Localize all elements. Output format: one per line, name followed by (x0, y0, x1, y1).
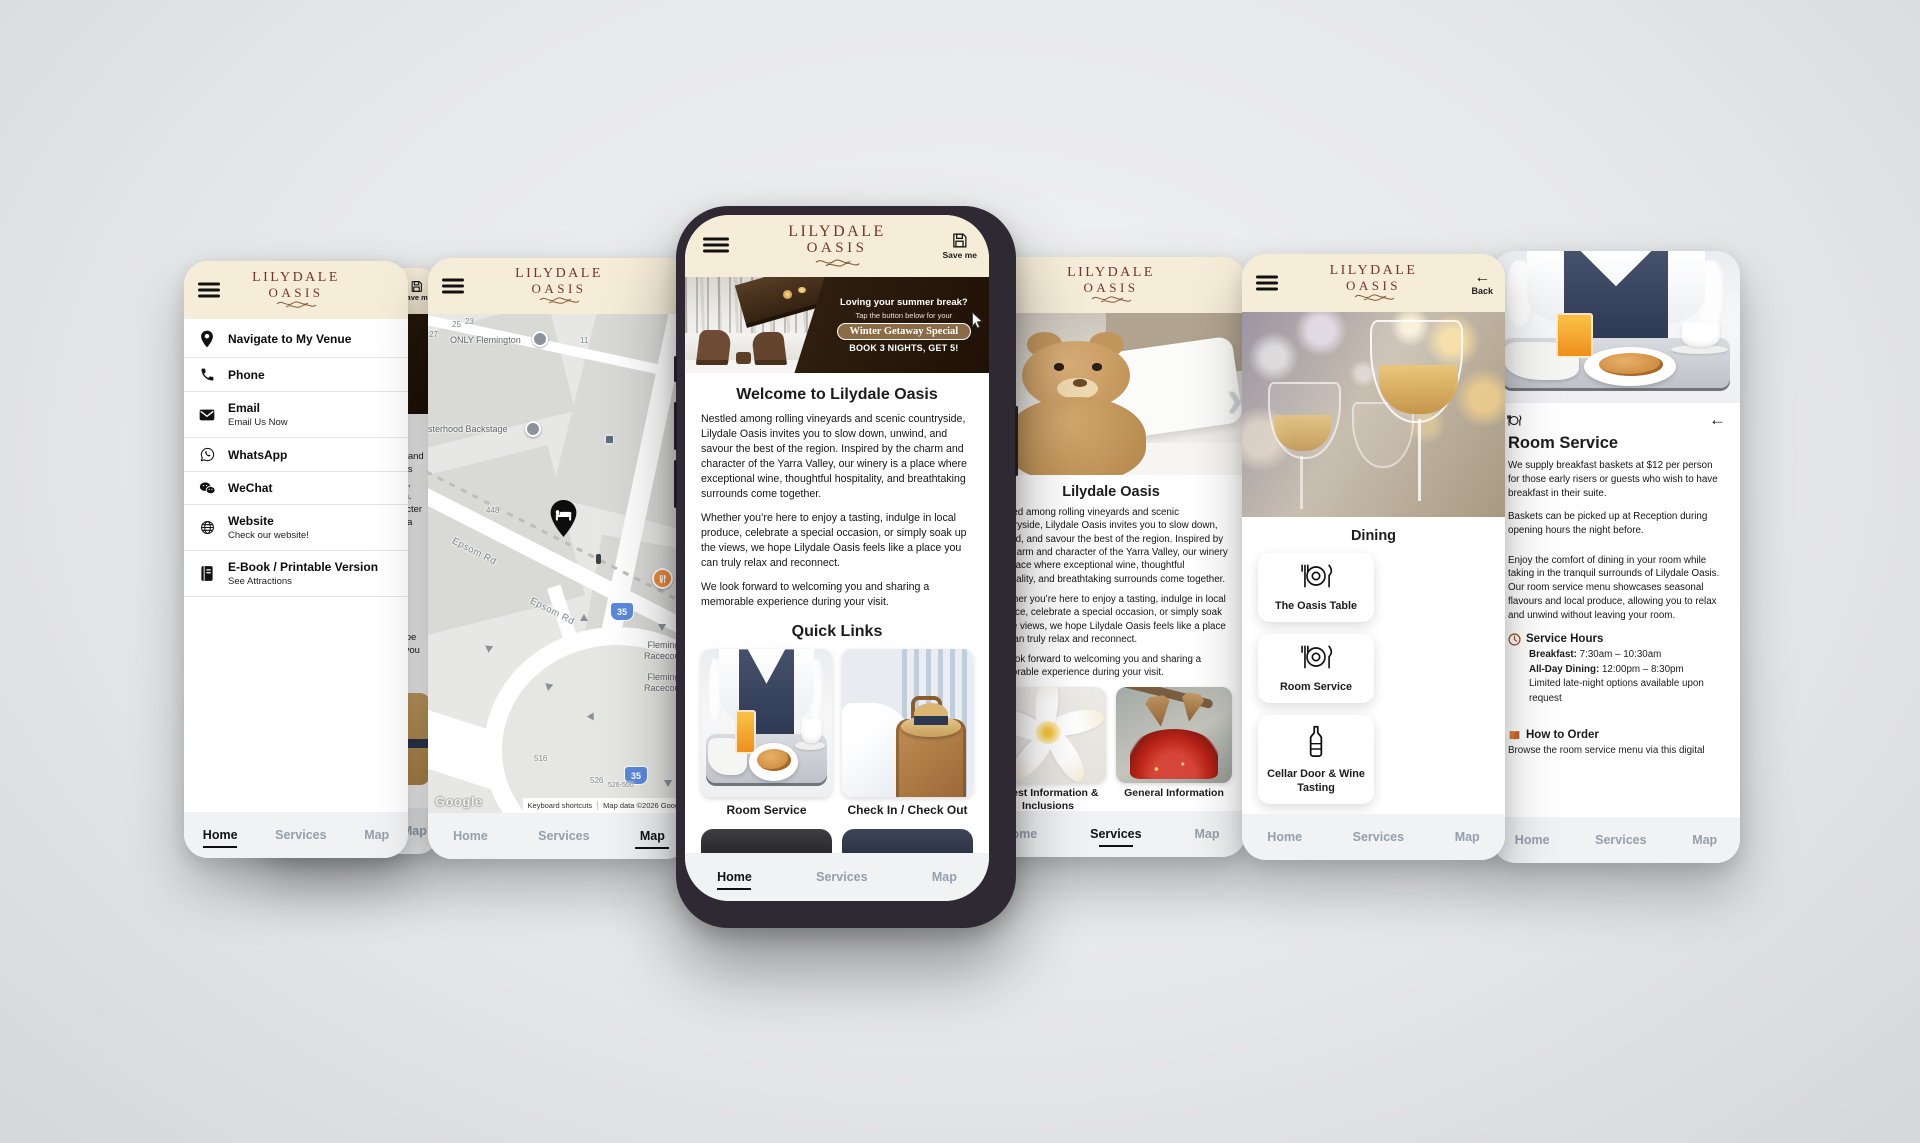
dining-cards: The Oasis Table Room Service Cellar Door… (1242, 553, 1505, 804)
quick-links-title: Quick Links (701, 623, 973, 641)
room-service-title: Room Service (1492, 430, 1740, 459)
banner-text: Loving your summer break? Tap the button… (819, 277, 989, 373)
welcome-paragraph: We look forward to welcoming you and sha… (701, 580, 973, 610)
nav-home[interactable]: Home (717, 870, 752, 884)
venue-pin-icon[interactable] (550, 500, 577, 542)
app-header: LILYDALE OASIS (184, 261, 408, 319)
back-arrow-icon: ← (1474, 270, 1490, 286)
screen-contact-menu: LILYDALE OASIS Navigate to My Venue Phon… (184, 261, 408, 858)
hamburger-menu-icon[interactable] (1256, 276, 1278, 291)
brand-line1: LILYDALE (788, 224, 885, 241)
menu-item-label: Website (228, 514, 309, 528)
room-service-paragraph: Baskets can be picked up at Reception du… (1508, 510, 1724, 538)
brand-line2: OASIS (252, 286, 340, 300)
room-service-photo (1492, 251, 1740, 403)
hours-breakfast: Breakfast: 7:30am – 10:30am (1529, 648, 1724, 663)
map-label: 23 (465, 317, 474, 326)
about-paragraph: We look forward to welcoming you and sha… (990, 653, 1232, 680)
brand-waves-icon (274, 300, 318, 309)
welcome-paragraph: Whether you’re here to enjoy a tasting, … (701, 511, 973, 571)
map-pin-icon[interactable] (525, 421, 541, 437)
nav-services[interactable]: Services (816, 870, 867, 884)
back-arrow-icon[interactable]: ← (1709, 410, 1726, 430)
banner-offer: BOOK 3 NIGHTS, GET 5! (849, 343, 958, 353)
mouse-cursor (970, 312, 985, 334)
nav-services[interactable]: Services (275, 828, 326, 842)
menu-item-label: Navigate to My Venue (228, 332, 351, 346)
app-header: LILYDALE OASIS ← Back (1242, 254, 1505, 312)
quick-link-partial-card[interactable] (842, 829, 973, 855)
hamburger-menu-icon[interactable] (442, 279, 464, 294)
google-logo[interactable]: Google (435, 794, 483, 809)
wechat-icon (197, 481, 217, 495)
nav-home[interactable]: Home (1267, 830, 1302, 844)
dining-title: Dining (1242, 528, 1505, 544)
globe-icon (197, 520, 217, 535)
map-pin-icon[interactable] (532, 331, 548, 347)
quick-link-check-in-out[interactable]: Check In / Check Out (842, 649, 973, 817)
clock-icon (1508, 633, 1521, 646)
map-label: 27 (429, 330, 438, 339)
services-body: Lilydale Oasis Nestled among rolling vin… (976, 484, 1246, 857)
traffic-light-icon (596, 554, 601, 564)
brand-logo: LILYDALE OASIS (252, 271, 340, 309)
banner-headline: Loving your summer break? (840, 297, 968, 308)
home-body: Welcome to Lilydale Oasis Nestled among … (685, 386, 989, 855)
map-label: 448 (486, 506, 499, 515)
app-header: LILYDALE OASIS (428, 258, 690, 314)
brand-waves-icon (1089, 295, 1133, 304)
bottom-nav: Home Services Map (1242, 814, 1505, 860)
welcome-title: Welcome to Lilydale Oasis (701, 386, 973, 404)
nav-home[interactable]: Home (453, 829, 488, 843)
brand-line1: LILYDALE (252, 271, 340, 286)
brand-waves-icon (811, 258, 863, 268)
plate-cutlery-icon (1506, 414, 1522, 427)
menu-item-label: E-Book / Printable Version (228, 560, 378, 574)
service-cards-row: Guest Information & Inclusions General I… (990, 687, 1232, 813)
plate-cutlery-icon (1298, 563, 1334, 589)
nav-home[interactable]: Home (1515, 833, 1550, 847)
dining-card-cellar-door[interactable]: Cellar Door & Wine Tasting (1258, 715, 1374, 804)
dining-card-room-service[interactable]: Room Service (1258, 634, 1374, 703)
brand-line2: OASIS (515, 282, 603, 296)
brand-waves-icon (537, 296, 581, 305)
dining-card-label: Cellar Door & Wine Tasting (1262, 767, 1370, 795)
menu-item-label: WhatsApp (228, 448, 287, 462)
dining-card-label: The Oasis Table (1262, 599, 1370, 613)
service-hours-section: Service Hours (1508, 633, 1724, 646)
menu-item-sub: Email Us Now (228, 417, 288, 428)
menu-item-ebook[interactable]: E-Book / Printable VersionSee Attraction… (184, 551, 408, 597)
brand-logo: LILYDALE OASIS (1067, 266, 1155, 304)
room-service-paragraph: We supply breakfast baskets at $12 per p… (1508, 459, 1724, 501)
about-title: Lilydale Oasis (990, 484, 1232, 500)
save-me-label: Save me (943, 250, 978, 260)
nav-services[interactable]: Services (1353, 830, 1404, 844)
location-pin-icon (197, 330, 217, 348)
about-paragraph: Whether you’re here to enjoy a tasting, … (990, 593, 1232, 646)
check-in-photo (842, 649, 973, 797)
map-label: 526-550 (608, 782, 634, 789)
promo-banner[interactable]: Loving your summer break? Tap the button… (685, 277, 989, 373)
service-card-general-info[interactable]: General Information (1116, 687, 1232, 813)
brand-line2: OASIS (1330, 279, 1418, 293)
nav-home[interactable]: Home (203, 828, 238, 842)
menu-item-sub: See Attractions (228, 576, 378, 587)
google-map[interactable]: 25 23 27 ONLY Flemington 11 Sisterhood B… (428, 314, 690, 813)
banner-subline: Tap the button below for your (856, 311, 953, 320)
quick-link-room-service[interactable]: Room Service (701, 649, 832, 817)
whatsapp-icon (197, 447, 217, 462)
bottom-nav: Home Services Map (184, 812, 408, 858)
map-poi-label: Sisterhood Backstage (428, 424, 508, 434)
bottom-nav: Home Services Map (428, 813, 690, 859)
save-icon (951, 232, 968, 249)
menu-item-whatsapp[interactable]: WhatsApp (184, 438, 408, 472)
brand-line1: LILYDALE (1067, 266, 1155, 281)
brand-logo: LILYDALE OASIS (788, 224, 885, 268)
screen-dining: LILYDALE OASIS ← Back Dining (1242, 254, 1505, 860)
screen-map: LILYDALE OASIS 25 23 27 (428, 258, 690, 859)
menu-item-label: WeChat (228, 481, 272, 495)
welcome-paragraph: Nestled among rolling vineyards and scen… (701, 412, 973, 502)
nav-map[interactable]: Map (1692, 833, 1717, 847)
nav-services[interactable]: Services (538, 829, 589, 843)
brand-logo: LILYDALE OASIS (515, 267, 603, 305)
menu-item-phone[interactable]: Phone (184, 358, 408, 392)
how-to-order-text: Browse the room service menu via this di… (1508, 744, 1724, 759)
back-button[interactable]: ← Back (1471, 270, 1493, 296)
dining-card-oasis-table[interactable]: The Oasis Table (1258, 553, 1374, 622)
detail-toolbar: ← (1492, 403, 1740, 430)
bottom-nav: Home Services Map (685, 853, 989, 901)
save-icon (410, 280, 423, 293)
room-service-paragraph: Enjoy the comfort of dining in your room… (1508, 554, 1724, 624)
keyboard-shortcuts-link[interactable]: Keyboard shortcuts (523, 801, 598, 810)
route-shield-35: 35 (610, 602, 634, 621)
about-paragraph: Nestled among rolling vineyards and scen… (990, 506, 1232, 586)
how-to-order-section: How to Order (1508, 729, 1724, 742)
map-attribution: Keyboard shortcuts Map data ©2026 Google (523, 798, 690, 813)
brand-line1: LILYDALE (515, 267, 603, 282)
dining-card-label: Room Service (1262, 680, 1370, 694)
quick-link-label: Check In / Check Out (842, 803, 973, 817)
winter-special-button[interactable]: Winter Getaway Special (837, 323, 972, 340)
email-icon (197, 409, 217, 421)
phone-mockup: LILYDALE OASIS Save me (676, 206, 1016, 928)
screen-room-service: ← Room Service We supply breakfast baske… (1492, 251, 1740, 863)
quick-links-next-row (701, 829, 973, 855)
save-me-button[interactable]: Save me (943, 232, 978, 260)
app-header: LILYDALE OASIS (976, 257, 1246, 313)
brand-waves-icon (1352, 293, 1396, 302)
menu-item-email[interactable]: EmailEmail Us Now (184, 392, 408, 438)
nav-map[interactable]: Map (640, 829, 665, 843)
map-label: 11 (580, 336, 588, 345)
wine-bottle-icon (1307, 725, 1325, 757)
map-poi-label: ONLY Flemington (450, 335, 521, 345)
mockup-canvas: Save me Lilydale Oasis Nestled among rol… (0, 0, 1920, 1143)
bottom-nav: Home Services Map (1492, 817, 1740, 863)
tram-stop-icon[interactable] (604, 434, 615, 445)
gum-flower-photo (1116, 687, 1232, 783)
nav-map[interactable]: Map (1195, 827, 1220, 841)
menu-item-navigate[interactable]: Navigate to My Venue (184, 321, 408, 358)
nav-map[interactable]: Map (364, 828, 389, 842)
nav-map[interactable]: Map (932, 870, 957, 884)
menu-item-website[interactable]: WebsiteCheck our website! (184, 505, 408, 551)
room-service-photo (701, 649, 832, 797)
back-label: Back (1471, 287, 1493, 296)
how-to-order-title: How to Order (1526, 729, 1599, 741)
screen-services: LILYDALE OASIS ❯ Lilydale Oasis Nestled … (976, 257, 1246, 857)
service-card-label: General Information (1116, 787, 1232, 800)
quick-links-row: Room Service Check In / Check Out (701, 649, 973, 817)
carousel-next-icon[interactable]: ❯ (1226, 388, 1243, 413)
hours-all-day: All-Day Dining: 12:00pm – 8:30pm (1529, 663, 1724, 678)
book-icon (1508, 729, 1521, 742)
map-label: 526 (590, 776, 603, 785)
brand-logo: LILYDALE OASIS (1330, 264, 1418, 302)
service-hours-title: Service Hours (1526, 633, 1603, 645)
phone-icon (197, 367, 217, 382)
screen-home: LILYDALE OASIS Save me (685, 215, 989, 901)
menu-item-sub: Check our website! (228, 530, 309, 541)
quick-link-partial-card[interactable] (701, 829, 832, 855)
contact-menu-list: Navigate to My Venue Phone EmailEmail Us… (184, 319, 408, 599)
menu-item-wechat[interactable]: WeChat (184, 472, 408, 505)
brand-line2: OASIS (788, 241, 885, 257)
map-label: 516 (534, 754, 547, 763)
brand-line1: LILYDALE (1330, 264, 1418, 279)
nav-services[interactable]: Services (1090, 827, 1141, 841)
app-header: LILYDALE OASIS Save me (685, 215, 989, 277)
plate-cutlery-icon (1298, 644, 1334, 670)
hamburger-menu-icon[interactable] (703, 238, 729, 255)
map-label: 25 (452, 320, 461, 329)
ebook-icon (197, 565, 217, 582)
nav-services[interactable]: Services (1595, 833, 1646, 847)
quick-link-label: Room Service (701, 803, 832, 817)
bottom-nav: Home Services Map (976, 811, 1246, 857)
restaurant-poi-icon[interactable] (652, 568, 673, 589)
menu-item-label: Phone (228, 368, 265, 382)
hours-note: Limited late-night options available upo… (1529, 677, 1724, 706)
nav-map[interactable]: Map (1455, 830, 1480, 844)
hamburger-menu-icon[interactable] (198, 283, 220, 298)
menu-item-label: Email (228, 401, 288, 415)
wine-glasses-photo (1242, 312, 1505, 517)
brand-line2: OASIS (1067, 281, 1155, 295)
